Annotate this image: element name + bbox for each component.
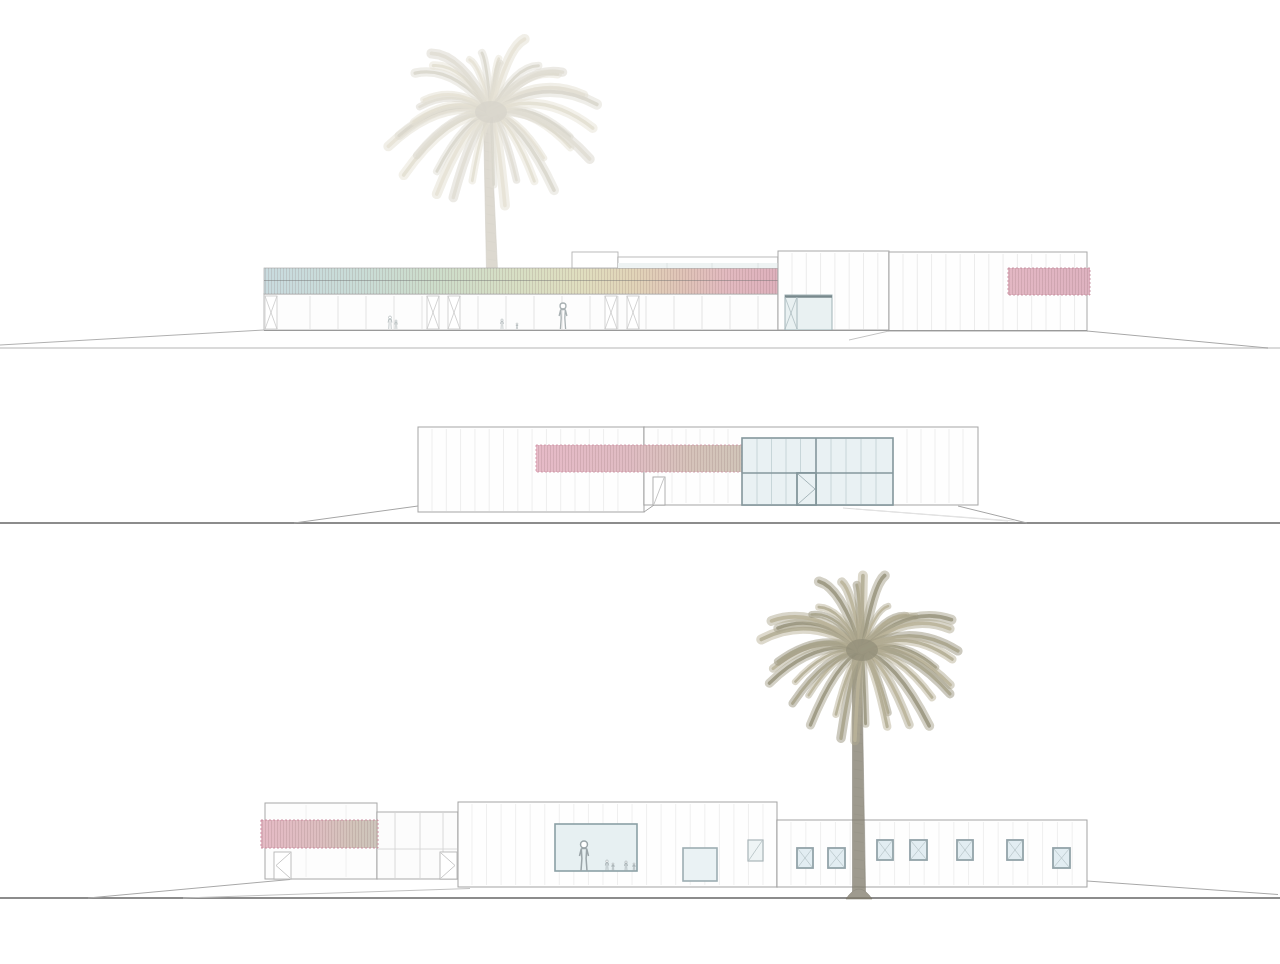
x-brace-column (265, 296, 277, 329)
x-brace-column (448, 296, 460, 329)
palm-tree-top (388, 39, 597, 270)
clerestory-box (572, 252, 618, 268)
pink-band-hatch (536, 445, 742, 472)
figure-head (516, 323, 518, 325)
pink-patch-hatch (1008, 268, 1090, 295)
x-brace-column (605, 296, 617, 329)
wing-window (1007, 840, 1023, 860)
figure-head (612, 863, 614, 865)
glass-door (797, 473, 816, 505)
figure-head (633, 863, 635, 865)
figure-head (501, 319, 503, 321)
ground-slope-right (1087, 331, 1268, 348)
figure-head (389, 316, 392, 319)
palm-crown-core (846, 639, 878, 661)
wing-window (910, 840, 927, 860)
figure-head (625, 861, 627, 863)
ground-slope-right (1087, 881, 1278, 895)
elevation-bottom (0, 802, 1280, 898)
wing-window (877, 840, 893, 860)
figure-head (581, 841, 588, 848)
figure-head (395, 320, 397, 322)
pink-band-hatch (261, 820, 378, 848)
square-window (683, 848, 717, 881)
ramp-line (856, 509, 1015, 521)
wing-window (1053, 848, 1070, 868)
wing-window (957, 840, 973, 860)
ground-slope-right (958, 506, 1027, 523)
elevation-top (0, 251, 1280, 348)
x-brace-column (427, 296, 439, 329)
plinth-step (644, 505, 654, 512)
figure-head (606, 860, 609, 863)
x-brace-column (627, 296, 639, 329)
ground-slope-inner (849, 331, 889, 340)
wing-window (828, 848, 845, 868)
ground-slope-left-2 (183, 889, 470, 899)
entry-glass-door (785, 295, 832, 330)
glazed-hall-wall (264, 294, 778, 330)
trunk-foot (846, 889, 872, 899)
elevation-middle (0, 427, 1280, 523)
architectural-drawing (0, 0, 1280, 964)
palm-crown-core (475, 101, 507, 123)
clerestory-glass (618, 263, 778, 268)
east-wing-volume (777, 820, 1087, 887)
wing-window (797, 848, 813, 868)
curtain-wall-glass (742, 438, 893, 505)
elevation-sheet (0, 0, 1280, 964)
ground-slope-left (0, 330, 264, 345)
ground-slope-left (294, 506, 418, 523)
figure-head (560, 303, 566, 309)
